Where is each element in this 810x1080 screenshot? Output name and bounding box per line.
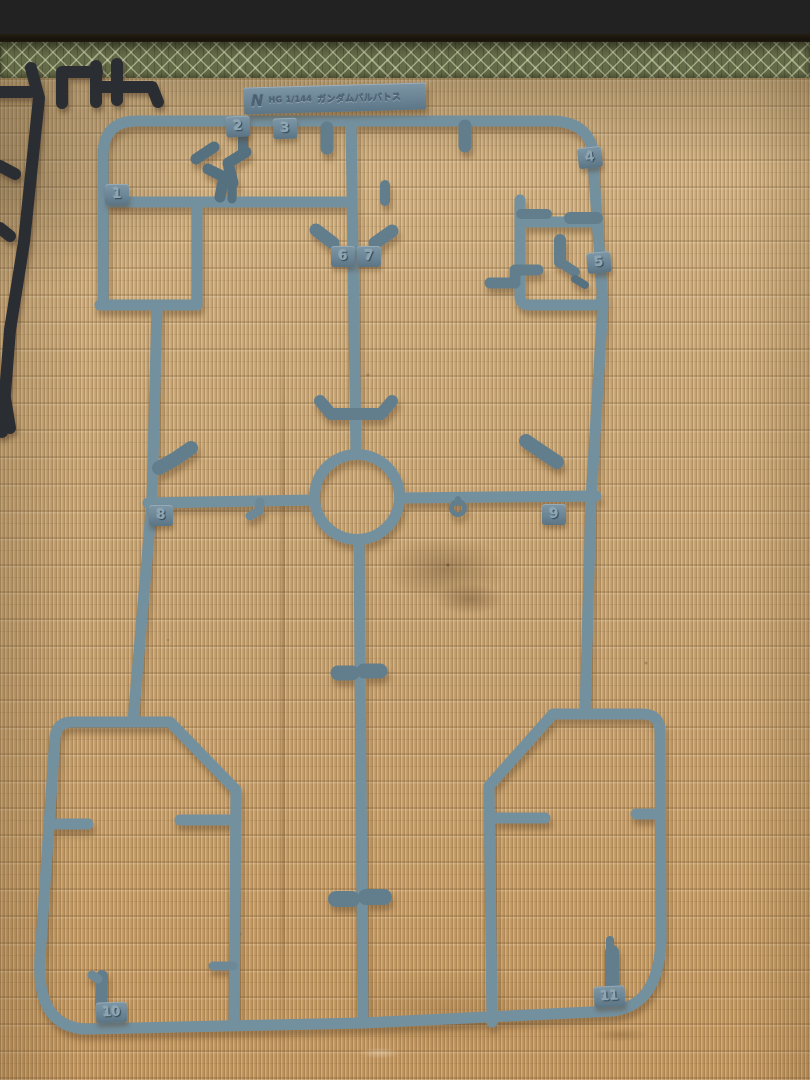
gate-tab-5: 5 (586, 251, 612, 274)
gate-tab-9: 9 (542, 504, 566, 525)
gate-tab-1: 1 (105, 184, 129, 205)
bottom-rail (85, 1011, 612, 1029)
runner-label-tag: N HG 1/144 ガンダムバルバトス (244, 82, 427, 114)
gate-tab-3: 3 (273, 118, 298, 140)
door-pegs (50, 814, 660, 824)
right-door-frame (489, 714, 661, 1022)
gate-tab-8: 8 (149, 505, 173, 526)
spine-lug-lower (336, 897, 384, 899)
middle-cross-bar (148, 496, 596, 503)
gate-tab-4: 4 (577, 146, 603, 170)
left-door-frame (40, 722, 236, 1029)
kit-scale-text: HG 1/144 (268, 95, 312, 105)
bent-pipe-right (526, 441, 557, 462)
ring-part (315, 455, 400, 540)
gate-tab-7: 7 (357, 246, 381, 267)
photo-model-kit-runner-on-tatami: N HG 1/144 ガンダムバルバトス 1 2 3 4 5 6 7 8 9 1… (0, 0, 810, 1080)
gate-tab-6: 6 (331, 246, 355, 267)
runner-letter: N (251, 91, 264, 109)
kit-name-text: ガンダムバルバトス (317, 90, 401, 105)
spine-lug-upper (338, 671, 380, 673)
upper-left-parts-cluster (196, 128, 246, 199)
gate-tab-11: 11 (593, 985, 625, 1008)
eyelet-part (452, 502, 465, 515)
gate-tab-10: 10 (96, 1001, 128, 1023)
bent-pipe-left (159, 448, 191, 468)
right-mid-rail (585, 304, 603, 714)
gate-tab-2: 2 (225, 115, 250, 137)
sprue-runners-drawing (0, 0, 810, 1080)
